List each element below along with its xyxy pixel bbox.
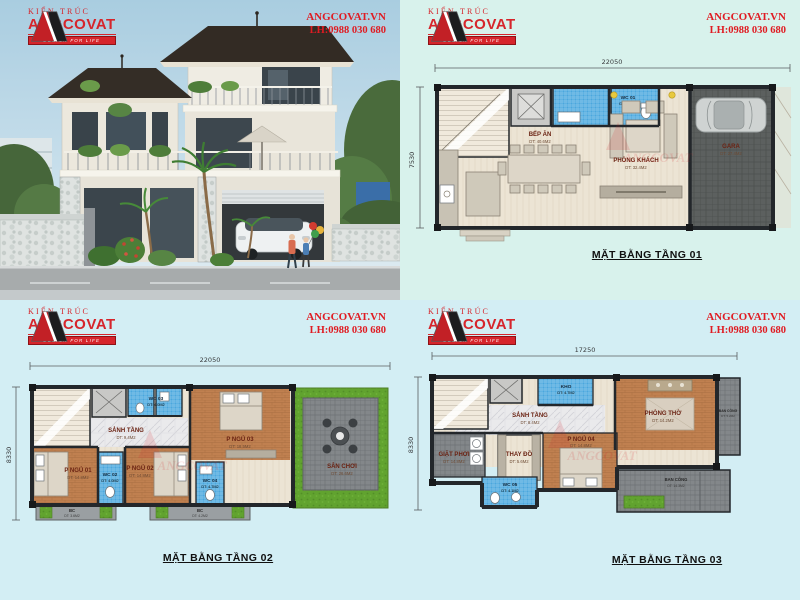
brand-logo-mark [28, 308, 68, 345]
room-label-wc02: WC 02 [103, 472, 118, 478]
room-area-sanchoi: DT: 26.6M2 [331, 471, 353, 476]
dim-depth: 8330 [5, 447, 13, 464]
dining-table [498, 145, 590, 193]
terrace [293, 388, 388, 508]
brand-hotline: LH:0988 030 680 [706, 24, 786, 38]
header-floor3: KIẾN TRÚC ANGCOVAT DESIGN FOR LIFE ANGCO… [400, 300, 800, 358]
stairs [432, 377, 488, 429]
room-label-wc04: WC 04 [203, 478, 218, 484]
stone-fence-right [332, 224, 400, 261]
header-render: KIẾN TRÚC ANGCOVAT DESIGN FOR LIFE ANGCO… [0, 0, 400, 58]
room-label-giatphoi: GIẶT PHƠI [438, 451, 469, 458]
brand-hotline: LH:0988 030 680 [306, 324, 386, 338]
dim-depth: 8330 [407, 437, 415, 454]
svg-text:ANGCOVAT: ANGCOVAT [622, 150, 693, 165]
room-label-wc03: WC 03 [149, 396, 164, 402]
room-label-thaydo: THAY ĐỒ [506, 451, 533, 458]
room-area-kho: DT: 4.7M2 [557, 391, 574, 395]
room-label-bancong-bottom: BAN CÔNG [665, 477, 688, 482]
slab-2f [60, 170, 340, 177]
room-label-bepan: BẾP ĂN [529, 131, 552, 138]
svg-text:ANGCOVAT: ANGCOVAT [566, 448, 637, 463]
plan-2: WC 03 DT: 4.0M2 SẢNH TẦNG DT: 9.4M2 P NG… [29, 384, 388, 520]
room-label-sanchoi: SÂN CHƠI [327, 463, 357, 470]
stone-fence-left [0, 208, 95, 268]
brand-website: ANGCOVAT.VN [306, 310, 386, 324]
floor3-title: MẶT BẰNG TẦNG 03 [567, 554, 767, 566]
room-area-pngu03: DT: 18.5M2 [229, 444, 251, 449]
brand-website: ANGCOVAT.VN [706, 10, 786, 24]
dim-depth: 7530 [408, 152, 416, 169]
glass-wall [150, 188, 194, 258]
room-area-wc03: DT: 4.0M2 [147, 403, 164, 407]
brand-logo: KIẾN TRÚC ANGCOVAT DESIGN FOR LIFE [428, 308, 516, 345]
room-label-sanhtang: SẢNH TẦNG [108, 427, 144, 434]
brand-website: ANGCOVAT.VN [706, 310, 786, 324]
room-area-bancong-bottom: DT: 14.3M2 [667, 484, 684, 488]
room-area-sanhtang: DT: 8.4M2 [520, 420, 540, 425]
floorplan-2-panel: 22050 8330 [0, 300, 400, 600]
road [0, 266, 400, 300]
brand-hotline: LH:0988 030 680 [706, 324, 786, 338]
contact-block: ANGCOVAT.VN LH:0988 030 680 [306, 310, 386, 338]
contact-block: ANGCOVAT.VN LH:0988 030 680 [706, 10, 786, 38]
driveway [773, 87, 791, 228]
room-label-kho: KHO [561, 384, 572, 390]
car-top-view [696, 98, 766, 132]
elevator [92, 387, 126, 417]
room-area-giatphoi: DT: 14.8M2 [443, 459, 465, 464]
room-area-bepan: DT: 40.6M2 [529, 139, 551, 144]
contact-block: ANGCOVAT.VN LH:0988 030 680 [706, 310, 786, 338]
room-label-wc05: WC 05 [503, 482, 518, 488]
villa-render-panel: KIẾN TRÚC ANGCOVAT DESIGN FOR LIFE ANGCO… [0, 0, 400, 300]
slab-3f [183, 105, 337, 112]
plan-1: WC 01 DT: 4.7M2 BẾP ĂN DT: 40.6M2 [434, 84, 791, 241]
stairs [437, 87, 509, 157]
brand-logo: KIẾN TRÚC ANGCOVAT DESIGN FOR LIFE [28, 308, 116, 345]
brand-logo: KIẾN TRÚC ANGCOVAT DESIGN FOR LIFE [428, 8, 516, 45]
room-area-gara: DT: 27.4M2 [720, 151, 742, 156]
room-area-wc02: DT: 4.0M2 [101, 479, 118, 483]
contact-block: ANGCOVAT.VN LH:0988 030 680 [306, 10, 386, 38]
room-label-bc1: BC [69, 508, 75, 513]
plan-3: KHO DT: 4.7M2 SẢNH TẦNG DT: 8.4M2 PHÒNG … [429, 374, 740, 512]
room-label-pngu03: P NGỦ 03 [226, 436, 254, 443]
room-label-pngu01: P NGỦ 01 [64, 467, 92, 474]
window [106, 112, 146, 150]
poster: KIẾN TRÚC ANGCOVAT DESIGN FOR LIFE ANGCO… [0, 0, 800, 600]
room-area-thaydo: DT: 5.6M2 [509, 459, 529, 464]
room-area-wc05: DT: 4.1M2 [501, 489, 518, 493]
header-floor2: KIẾN TRÚC ANGCOVAT DESIGN FOR LIFE ANGCO… [0, 300, 400, 358]
room-area-bancong-right: DT: 5.2M2 [721, 414, 735, 418]
elevator [511, 87, 551, 126]
flower-bush [115, 237, 145, 263]
svg-text:ANGCOVAT: ANGCOVAT [156, 458, 227, 473]
entry-steps [460, 230, 510, 241]
floorplan-1-panel: 22050 7530 [400, 0, 800, 300]
room-label-gara: GARA [722, 144, 740, 150]
room-label-wc01: WC 01 [621, 95, 636, 101]
floorplan-3-panel: 17250 8330 KHO [400, 300, 800, 600]
brand-logo-mark [428, 308, 468, 345]
window [152, 112, 168, 150]
room-area-pngu02: DT: 14.8M2 [129, 473, 151, 478]
brand-logo: KIẾN TRÚC ANGCOVAT DESIGN FOR LIFE [28, 8, 116, 45]
room-area-bc2: DT: 4.2M2 [192, 514, 208, 518]
stairs [32, 387, 90, 447]
room-label-bc2: BC [197, 508, 203, 513]
brand-logo-mark [428, 8, 468, 45]
room-area-sanhtang: DT: 9.4M2 [116, 435, 136, 440]
brand-logo-mark [28, 8, 68, 45]
room-area-bc1: DT: 3.6M2 [64, 514, 80, 518]
room-label-pngu02: P NGỦ 02 [126, 465, 154, 472]
floor1-title: MẶT BẰNG TẦNG 01 [547, 249, 747, 261]
room-label-phongtho: PHÒNG THỜ [645, 409, 683, 417]
room-area-phongtho: DT: 14.2M2 [652, 418, 674, 423]
room-area-wc04: DT: 4.7M2 [201, 485, 218, 489]
brand-website: ANGCOVAT.VN [306, 10, 386, 24]
floor2-title: MẶT BẰNG TẦNG 02 [118, 552, 318, 564]
dim-width: 22050 [602, 58, 623, 66]
room-area-phongkhach: DT: 32.4M2 [625, 165, 647, 170]
room-label-pngu04: P NGỦ 04 [567, 436, 595, 443]
header-floor1: KIẾN TRÚC ANGCOVAT DESIGN FOR LIFE ANGCO… [400, 0, 800, 58]
room-label-bancong-right: BAN CÔNG [719, 408, 738, 413]
room-area-pngu01: DT: 14.8M2 [67, 475, 89, 480]
window [72, 112, 98, 150]
elevator [490, 377, 522, 403]
room-label-sanhtang: SẢNH TẦNG [512, 412, 548, 419]
bed-1 [34, 452, 68, 496]
brand-hotline: LH:0988 030 680 [306, 24, 386, 38]
